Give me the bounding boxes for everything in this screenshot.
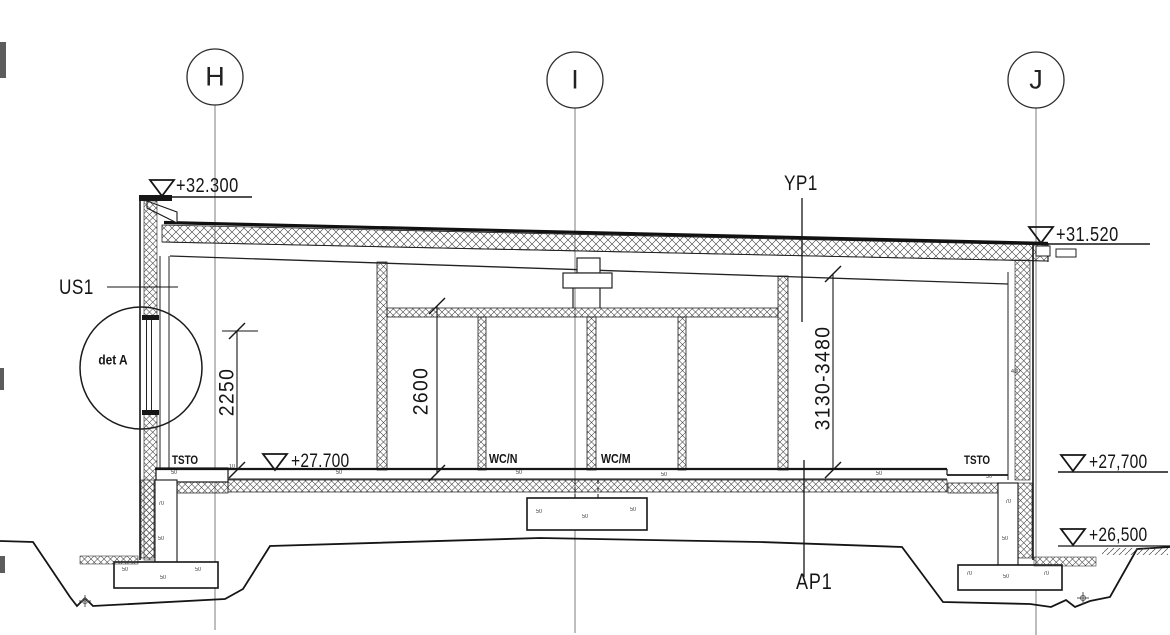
grid-label-j: J — [1029, 67, 1043, 94]
wc-partitions — [377, 262, 788, 470]
partition-tall-left — [377, 262, 387, 470]
label-wc-m: WC/M — [601, 452, 631, 465]
column-grid-i — [563, 258, 612, 308]
mark: 70 — [966, 571, 972, 577]
partition-wc-1 — [478, 317, 486, 470]
elevation-floor-left: +27.700 — [291, 452, 349, 471]
mark: 50 — [1002, 536, 1008, 542]
floor-insulation — [228, 480, 947, 492]
mark: 50 — [160, 575, 166, 581]
detail-circle-a — [80, 307, 202, 429]
label-wc-n: WC/N — [489, 452, 517, 465]
grid-bubbles — [187, 49, 1064, 108]
mark: 50 — [195, 567, 201, 573]
mark: 50 — [122, 567, 128, 573]
dim-text-2600: 2600 — [411, 367, 432, 416]
elevation-roof-right: +31.520 — [1056, 225, 1119, 245]
parapet-cap — [139, 195, 172, 201]
mark: 50 — [171, 470, 177, 476]
roof-insulation — [162, 225, 1048, 261]
mark: 50 — [876, 471, 882, 477]
mark: 70 — [1005, 499, 1011, 505]
level-triangle-roof-right — [1029, 227, 1053, 243]
benchmark-symbol-left — [79, 595, 91, 607]
gutter-detail — [1056, 249, 1076, 257]
label-tsto-right: TSTO — [964, 454, 990, 466]
partition-wc-2 — [587, 317, 596, 470]
ground-hatch — [1102, 548, 1168, 555]
window-sill — [142, 410, 159, 415]
foundation-wall-left — [155, 480, 177, 562]
dim-text-3130-3480: 3130-3480 — [813, 326, 834, 431]
mark: 50 — [516, 470, 522, 476]
grid-lines — [215, 105, 1036, 635]
grid-label-i: I — [571, 67, 579, 94]
section-drawing: H I J +32.300 +31.520 +27.700 +27,700 +2… — [0, 0, 1170, 635]
label-wall-480: 480 — [1011, 369, 1020, 375]
foundation-wall-right — [998, 483, 1018, 565]
level-triangle-floor-left — [263, 454, 287, 470]
level-triangle-ground-right — [1061, 529, 1085, 545]
foundations — [80, 480, 1096, 590]
label-us1: US1 — [59, 277, 94, 298]
label-ap1: AP1 — [796, 571, 833, 593]
mark: 10 — [229, 464, 235, 470]
elevation-floor-right: +27,700 — [1089, 453, 1147, 472]
leader-lines — [107, 198, 804, 577]
mark: 50 — [536, 509, 542, 515]
section-linework — [0, 0, 1170, 635]
mark: 50 — [986, 474, 992, 480]
mark: 70 — [158, 501, 164, 507]
mark: 50 — [630, 507, 636, 513]
mark: 50 — [158, 536, 164, 542]
mark: 50 — [336, 470, 342, 476]
wc-ceiling — [387, 308, 778, 317]
window-head — [142, 315, 159, 320]
level-triangle-parapet — [150, 180, 174, 196]
partition-wc-3 — [678, 317, 686, 470]
dim-text-2250: 2250 — [217, 368, 238, 417]
label-yp1: YP1 — [784, 173, 818, 194]
mark: 50 — [661, 472, 667, 478]
scan-artifacts — [0, 42, 6, 573]
elevation-parapet-left: +32.300 — [176, 176, 239, 196]
label-det-a: det A — [98, 353, 127, 367]
roof-assembly — [162, 223, 1076, 285]
mark: 50 — [1003, 574, 1009, 580]
grid-label-h: H — [205, 64, 225, 91]
mark: 70 — [1043, 571, 1049, 577]
dimension-lines — [222, 266, 841, 481]
partition-tall-right — [778, 276, 788, 470]
footing-right — [958, 565, 1062, 590]
elevation-ground-right: +26,500 — [1089, 526, 1147, 545]
level-triangle-floor-right — [1061, 455, 1085, 471]
label-tsto-left: TSTO — [172, 454, 198, 466]
roof-edge-flashing — [1036, 246, 1050, 256]
mark: 50 — [582, 514, 588, 520]
